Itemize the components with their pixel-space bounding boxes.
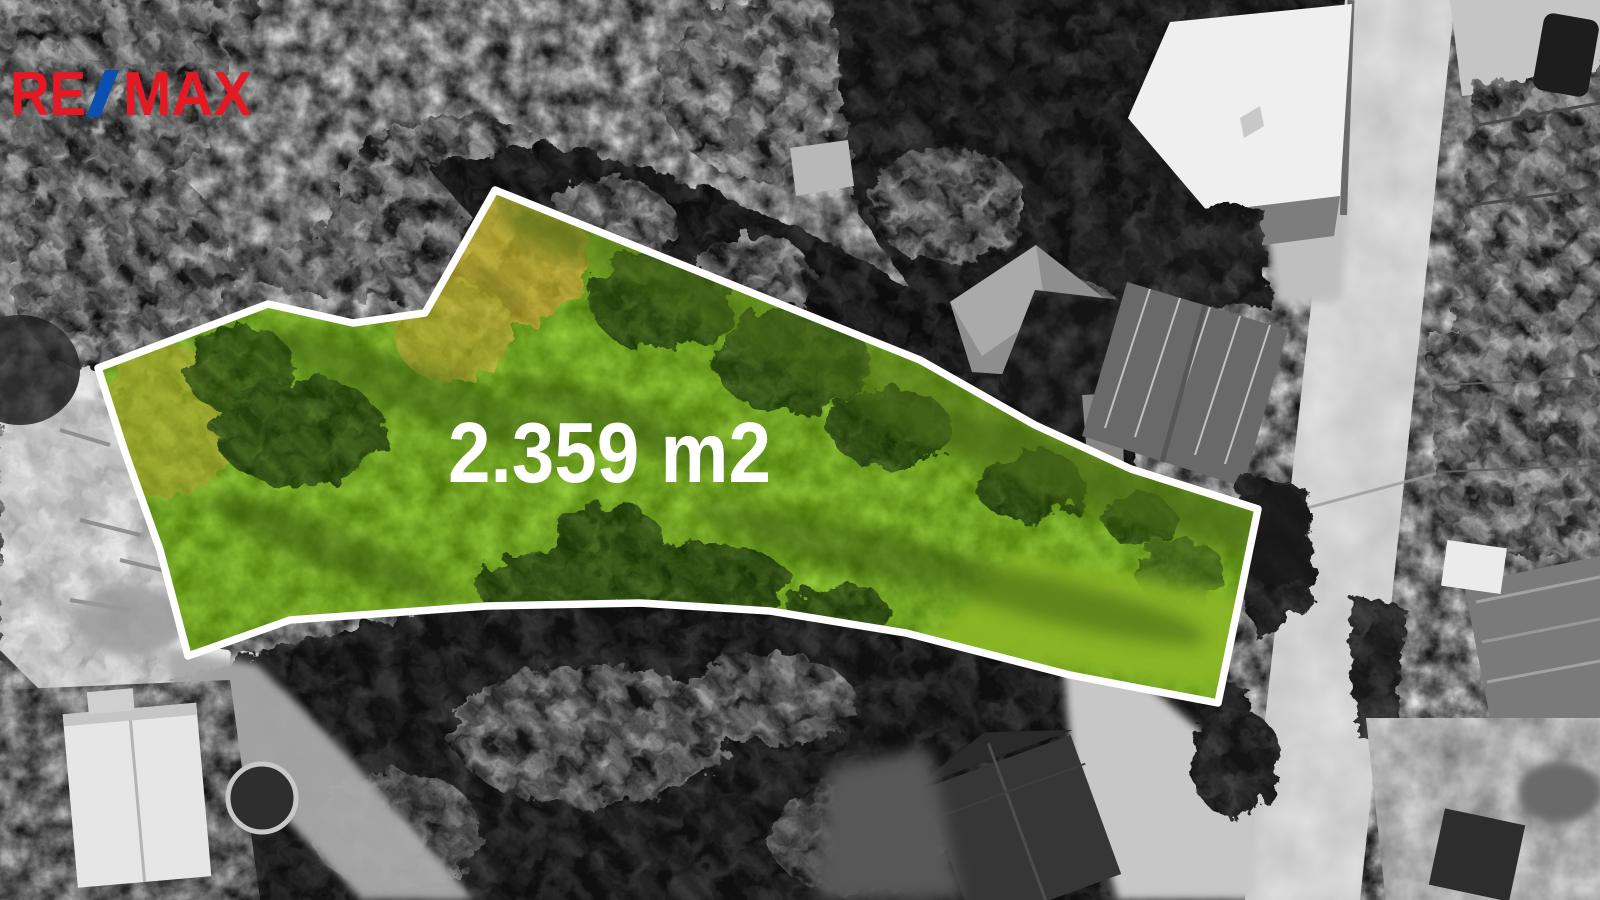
svg-text:2.359 m2: 2.359 m2 xyxy=(448,406,771,501)
svg-text:RE: RE xyxy=(10,60,86,129)
svg-text:MAX: MAX xyxy=(123,60,252,129)
